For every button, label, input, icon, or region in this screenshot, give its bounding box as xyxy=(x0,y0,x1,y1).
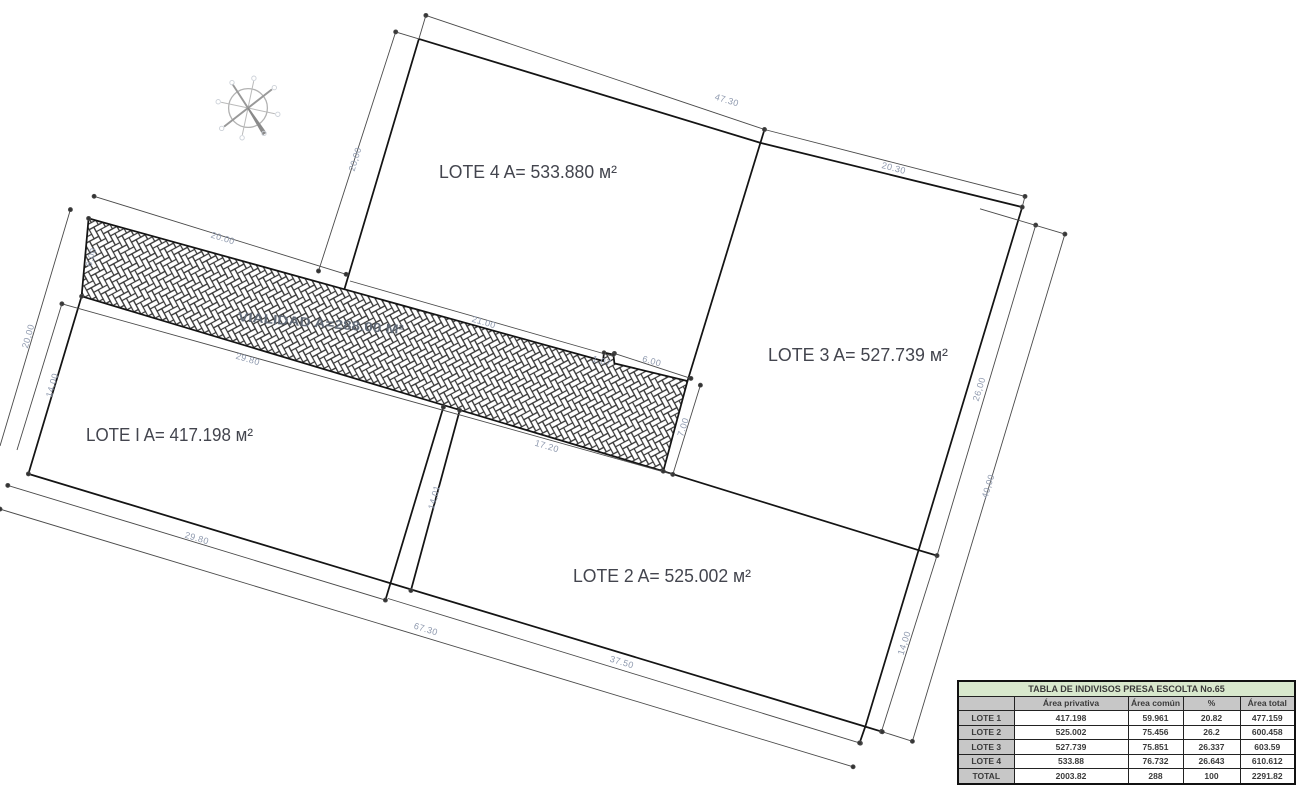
svg-text:LOTE 3 A= 527.739 м²: LOTE 3 A= 527.739 м² xyxy=(768,345,948,365)
svg-text:40,00: 40,00 xyxy=(980,473,997,499)
svg-text:LOTE I A= 417.198 м²: LOTE I A= 417.198 м² xyxy=(86,425,253,445)
svg-text:LOTE 2 A= 525.002 м²: LOTE 2 A= 525.002 м² xyxy=(573,566,751,586)
svg-text:20,00: 20,00 xyxy=(20,323,36,349)
svg-text:26,00: 26,00 xyxy=(971,376,988,402)
svg-text:14,01: 14,01 xyxy=(426,484,442,510)
svg-text:17.20: 17.20 xyxy=(534,438,560,455)
svg-text:20.00: 20.00 xyxy=(210,230,236,247)
svg-text:29.80: 29.80 xyxy=(235,351,261,368)
svg-text:LOTE 4 A= 533.880 м²: LOTE 4 A= 533.880 м² xyxy=(439,162,617,182)
svg-text:6.00: 6.00 xyxy=(641,354,662,369)
svg-text:29.80: 29.80 xyxy=(184,530,210,547)
svg-text:20,00: 20,00 xyxy=(347,146,364,172)
svg-text:47.30: 47.30 xyxy=(714,92,740,109)
svg-text:14,00: 14,00 xyxy=(896,630,913,656)
svg-text:14,00: 14,00 xyxy=(44,372,60,398)
